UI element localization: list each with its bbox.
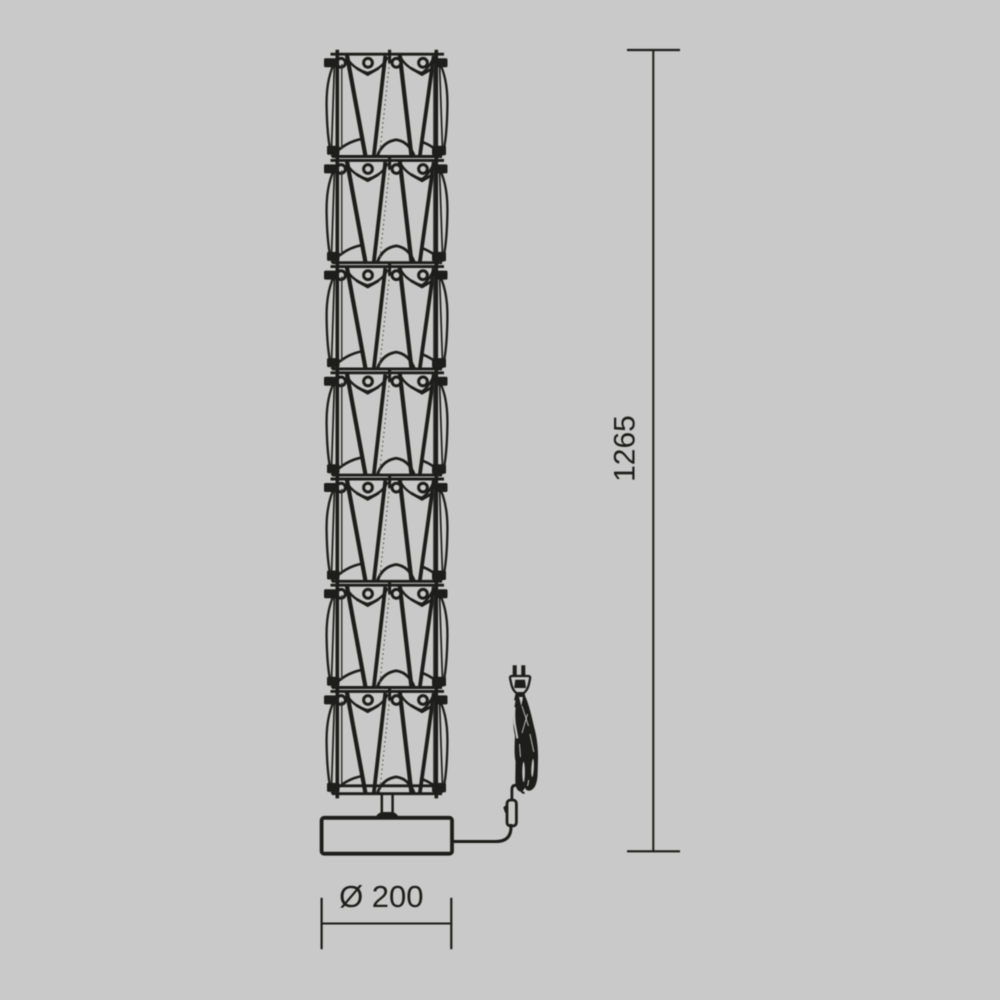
- svg-text:1265: 1265: [609, 415, 642, 482]
- svg-text:Ø 200: Ø 200: [339, 879, 423, 914]
